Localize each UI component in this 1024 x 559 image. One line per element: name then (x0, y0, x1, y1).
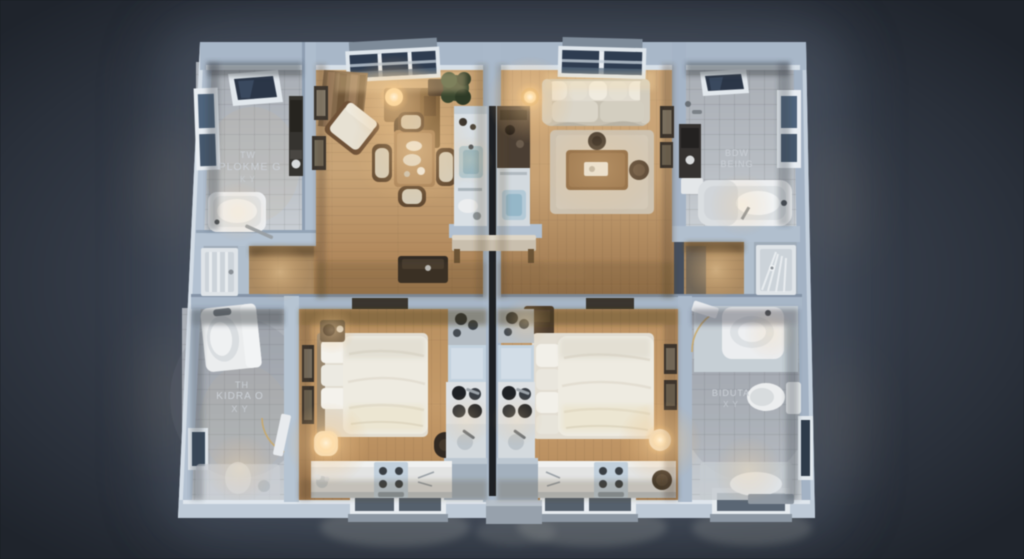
svg-text:BEING: BEING (720, 159, 753, 169)
svg-text:TH: TH (235, 380, 249, 390)
svg-text:KIDRA O: KIDRA O (216, 391, 264, 402)
svg-text:X Y: X Y (231, 404, 248, 414)
svg-text:PLOKME G: PLOKME G (219, 161, 282, 173)
svg-text:X Y: X Y (723, 400, 739, 409)
svg-text:BDW: BDW (725, 148, 749, 158)
svg-text:BIDUTA: BIDUTA (712, 388, 750, 398)
svg-text:TW: TW (240, 150, 256, 160)
